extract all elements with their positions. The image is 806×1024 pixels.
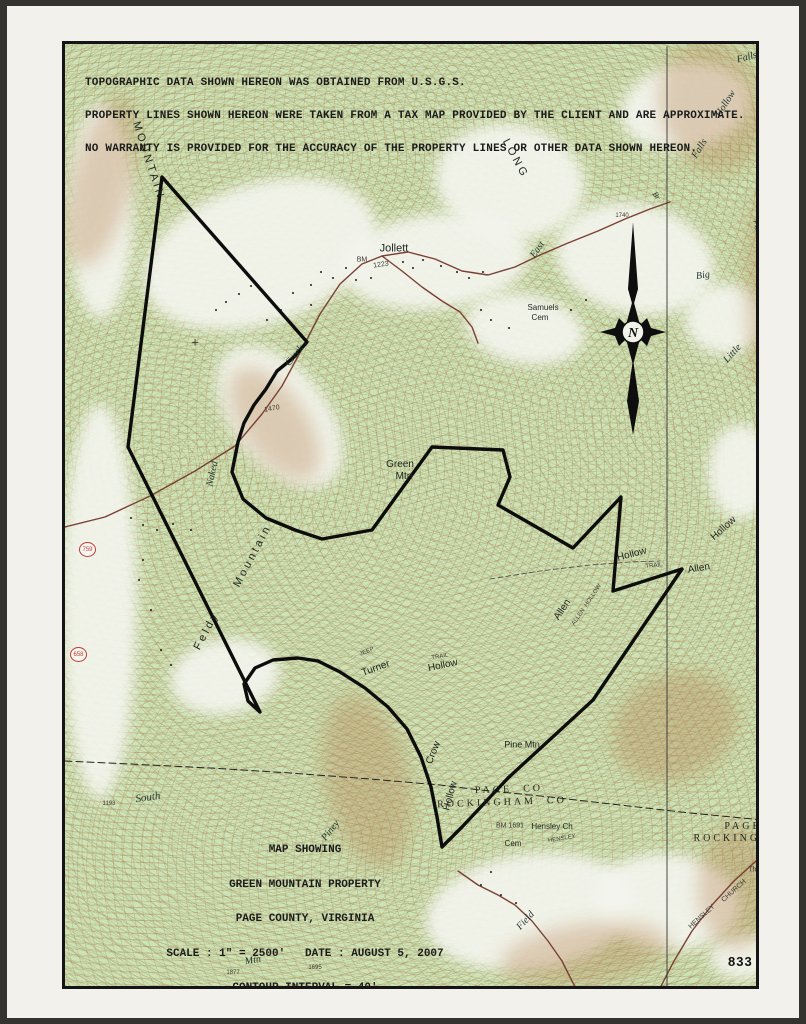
- contour-interval: CONTOUR INTERVAL = 40': [105, 983, 505, 989]
- scale-date: SCALE : 1" = 2500' DATE : AUGUST 5, 2007: [105, 949, 505, 961]
- disclaimer-line-2: PROPERTY LINES SHOWN HEREON WERE TAKEN F…: [85, 111, 745, 122]
- road-jollett-spur: [382, 256, 478, 343]
- road-valley-road: [65, 202, 670, 527]
- north-needle-top: [628, 222, 638, 307]
- disclaimer-line-3: NO WARRANTY IS PROVIDED FOR THE ACCURACY…: [85, 144, 745, 155]
- property-name: GREEN MOUNTAIN PROPERTY: [105, 880, 505, 892]
- disclaimer-text: TOPOGRAPHIC DATA SHOWN HEREON WAS OBTAIN…: [85, 56, 745, 177]
- compass-rose north-arrow: N: [600, 179, 666, 439]
- topo-map: MOUNTAINLONGJollettBM1223EastBrSamuelsCe…: [62, 41, 759, 989]
- county-boundary-line: [65, 761, 759, 820]
- title-block: MAP SHOWING GREEN MOUNTAIN PROPERTY PAGE…: [105, 822, 505, 989]
- property-boundary-line: [128, 177, 682, 847]
- disclaimer-line-1: TOPOGRAPHIC DATA SHOWN HEREON WAS OBTAIN…: [85, 78, 745, 89]
- scanned-page: MOUNTAINLONGJollettBM1223EastBrSamuelsCe…: [7, 6, 799, 1018]
- map-title-line: MAP SHOWING: [105, 845, 505, 857]
- sheet-number: 833: [728, 954, 753, 969]
- trail-line: [490, 561, 660, 579]
- compass-north-label: N: [627, 326, 639, 341]
- county-state: PAGE COUNTY, VIRGINIA: [105, 914, 505, 926]
- south-needle-bottom: [627, 359, 639, 435]
